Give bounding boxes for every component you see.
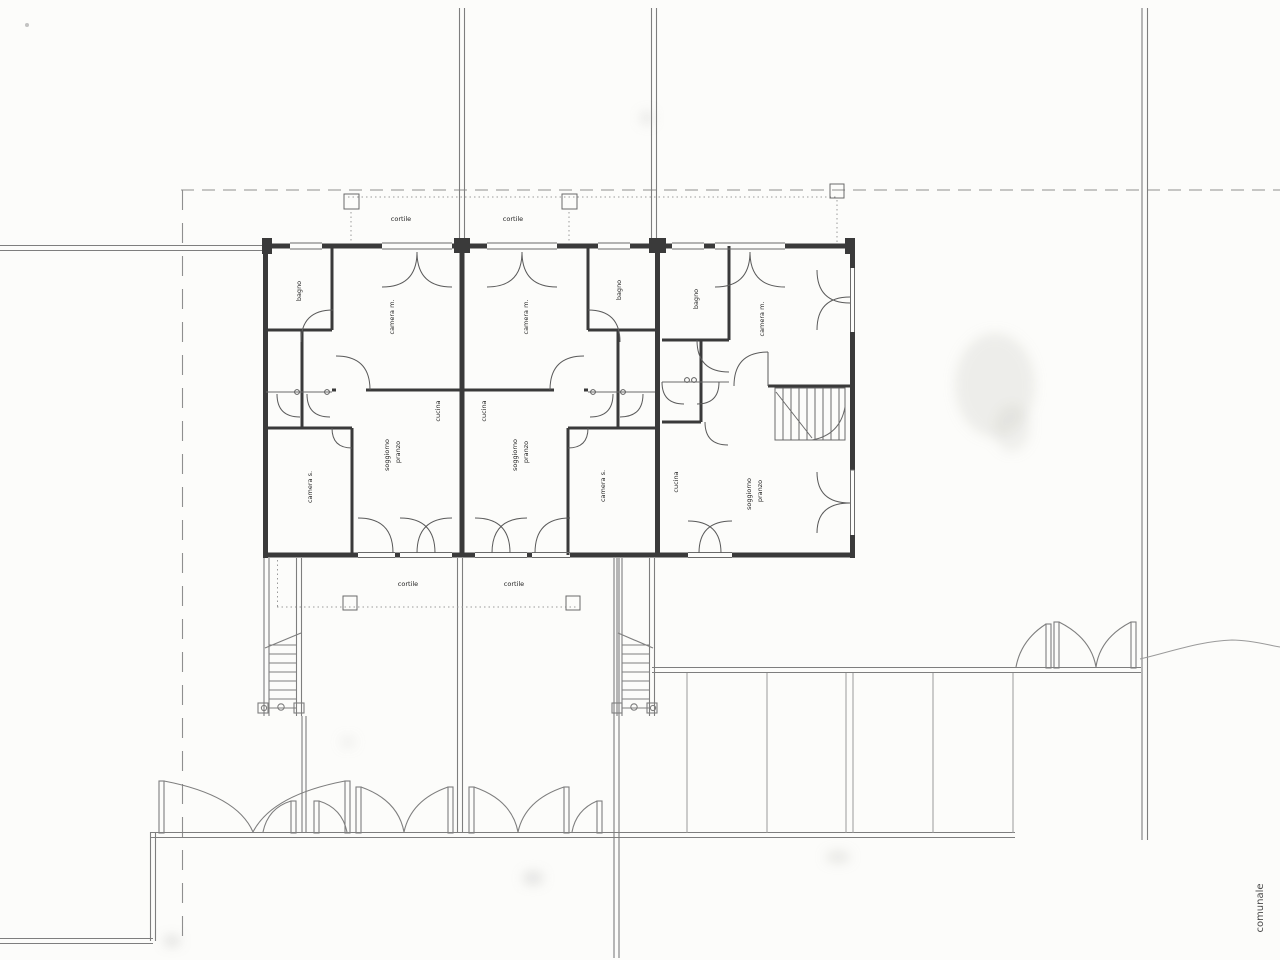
- room-label-camera-m-right: camera m.: [758, 301, 766, 336]
- room-label-pranzo-right: pranzo: [756, 480, 764, 502]
- room-label-cucina-center: cucina: [480, 400, 488, 421]
- room-label-camera-m-left: camera m.: [388, 299, 396, 334]
- exterior-stair-left: [258, 558, 304, 716]
- courtyard-label-bottom-right: cortile: [504, 580, 524, 588]
- boundary-post-marker: [344, 194, 359, 209]
- scanned-floorplan-page: bagno camera m. cucina soggiorno pranzo …: [0, 0, 1280, 960]
- courtyard-label-top-right: cortile: [503, 215, 523, 223]
- room-label-camera-s-left: camera s.: [306, 471, 314, 503]
- parking-boxes: [687, 673, 1013, 833]
- scan-speck: [25, 23, 29, 27]
- boundary-post-marker: [830, 184, 844, 198]
- room-label-soggiorno-right: soggiorno: [745, 478, 753, 510]
- interior-staircase: [775, 388, 845, 440]
- room-label-cucina-right: cucina: [672, 471, 680, 492]
- room-label-soggiorno-center: soggiorno: [511, 439, 519, 471]
- room-label-bagno-left: bagno: [295, 281, 303, 301]
- room-labels: bagno camera m. cucina soggiorno pranzo …: [295, 280, 766, 510]
- courtyard-label-bottom-left: cortile: [398, 580, 418, 588]
- boundary-post-marker: [566, 596, 580, 610]
- room-label-soggiorno-left: soggiorno: [383, 439, 391, 471]
- room-label-bagno-center: bagno: [615, 280, 623, 300]
- room-label-cucina-left: cucina: [434, 400, 442, 421]
- room-label-camera-s-center: camera s.: [599, 470, 607, 502]
- room-label-pranzo-center: pranzo: [522, 441, 530, 463]
- windows: [290, 243, 855, 558]
- boundary-post-marker: [343, 596, 357, 610]
- building-interior-walls: [266, 246, 852, 555]
- boundary-post-marker: [562, 194, 577, 209]
- room-label-pranzo-left: pranzo: [394, 441, 402, 463]
- scan-smudges: [164, 112, 1035, 945]
- room-label-camera-m-center: camera m.: [522, 299, 530, 334]
- site-boundary-lines: [0, 8, 1280, 958]
- floorplan-canvas: bagno camera m. cucina soggiorno pranzo …: [0, 0, 1280, 960]
- courtyard-label-top-left: cortile: [391, 215, 411, 223]
- street-label-comunale: comunale: [1255, 883, 1266, 932]
- room-label-bagno-right: bagno: [692, 289, 700, 309]
- door-swing-arcs: [277, 252, 850, 553]
